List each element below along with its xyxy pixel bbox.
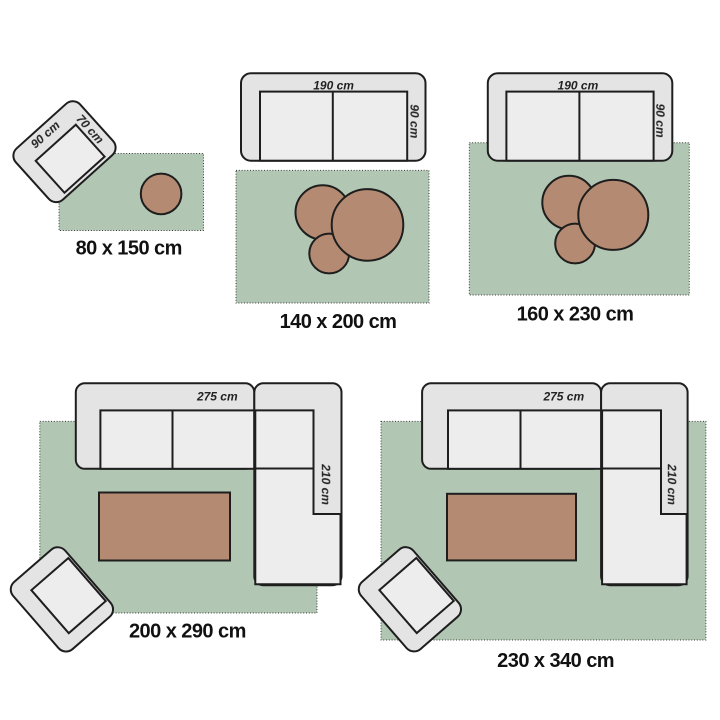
svg-text:275 cm: 275 cm — [542, 390, 584, 404]
svg-text:190 cm: 190 cm — [558, 78, 599, 92]
svg-text:230 x 340 cm: 230 x 340 cm — [497, 650, 614, 672]
svg-text:160 x 230 cm: 160 x 230 cm — [517, 303, 634, 325]
svg-text:200 x 290 cm: 200 x 290 cm — [129, 621, 246, 643]
svg-text:140 x 200 cm: 140 x 200 cm — [280, 311, 397, 333]
svg-text:210 cm: 210 cm — [319, 463, 333, 505]
svg-text:90 cm: 90 cm — [653, 104, 667, 138]
svg-text:275 cm: 275 cm — [196, 390, 238, 404]
svg-text:210 cm: 210 cm — [665, 463, 679, 505]
svg-text:90 cm: 90 cm — [408, 104, 422, 138]
svg-text:80 x 150 cm: 80 x 150 cm — [76, 238, 182, 260]
svg-text:190 cm: 190 cm — [313, 78, 354, 92]
